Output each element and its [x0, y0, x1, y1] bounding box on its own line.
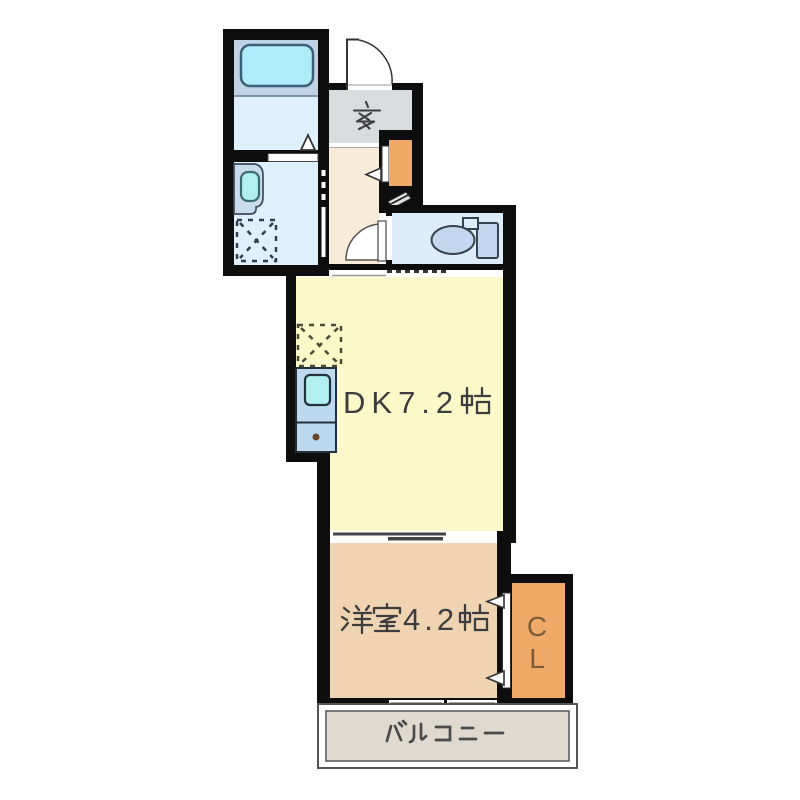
svg-text:4.2: 4.2	[403, 602, 458, 637]
svg-text:C: C	[527, 611, 547, 642]
svg-text:L: L	[529, 643, 545, 674]
svg-text:DK7.2: DK7.2	[343, 385, 459, 420]
